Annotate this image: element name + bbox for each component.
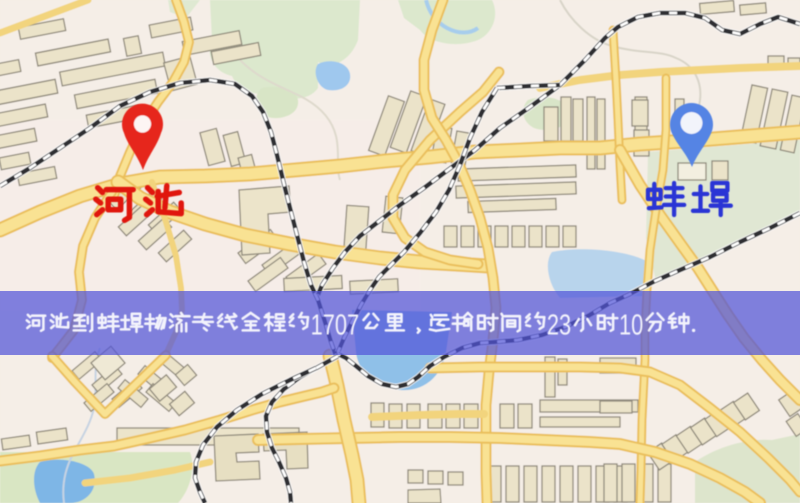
svg-text:1707: 1707 <box>311 309 360 341</box>
svg-text:10: 10 <box>619 309 643 341</box>
svg-text:23: 23 <box>547 309 571 341</box>
